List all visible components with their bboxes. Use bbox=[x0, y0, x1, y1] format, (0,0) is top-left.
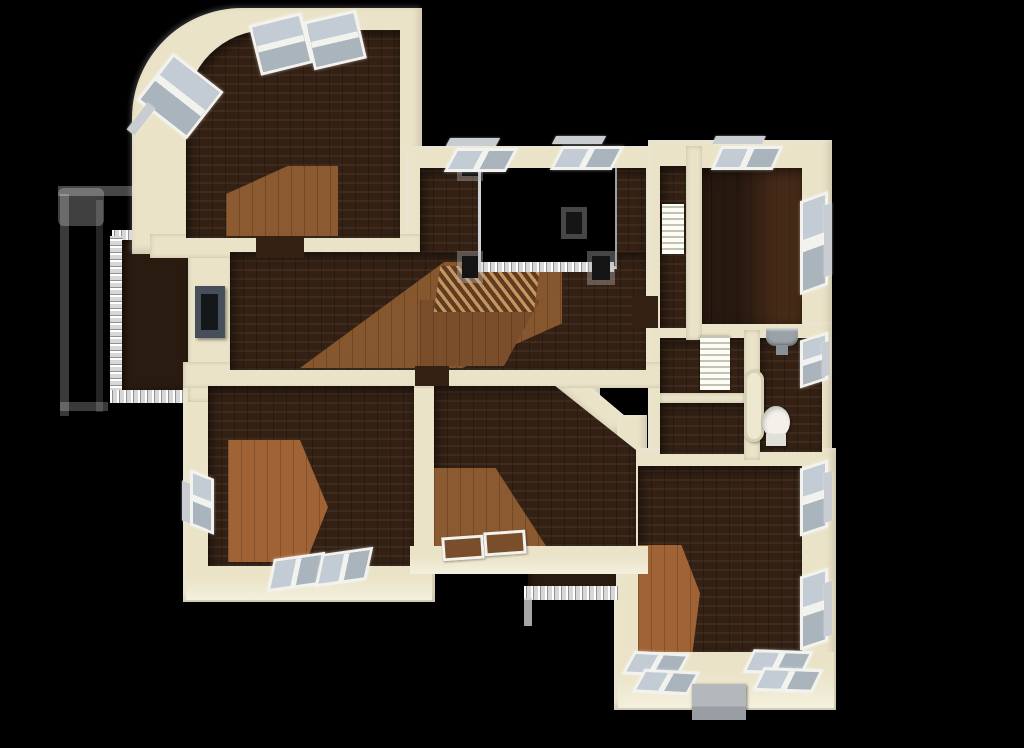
wall-closet-strip-right bbox=[686, 146, 702, 340]
wall-closet-separator bbox=[660, 393, 748, 403]
fireplace-firebox bbox=[201, 294, 218, 330]
sink-pedestal bbox=[776, 345, 788, 355]
window-top-right-top bbox=[711, 146, 784, 170]
window-bottom-right-b4 bbox=[752, 667, 823, 693]
ghost-railing-left bbox=[60, 194, 69, 416]
balcony-floor bbox=[122, 240, 190, 390]
window-stair-hall-1 bbox=[444, 148, 519, 172]
sill-bathroom bbox=[822, 341, 830, 378]
balcony-bottom-rail bbox=[524, 586, 618, 600]
toilet-tank bbox=[766, 434, 786, 446]
window-bottom-left-side bbox=[190, 469, 214, 535]
chimney-block bbox=[692, 684, 746, 720]
window-stair-hall-2 bbox=[550, 146, 625, 170]
door-top-left-room bbox=[256, 236, 304, 258]
stairwell-opening bbox=[478, 168, 617, 269]
newel-post-middle bbox=[566, 212, 582, 234]
floorplan-canvas bbox=[0, 0, 1024, 748]
balcony-bottom-post bbox=[524, 598, 532, 626]
floor-window-2 bbox=[483, 530, 527, 557]
door-bottom-center-room bbox=[415, 366, 449, 386]
bathtub bbox=[744, 370, 764, 442]
sill-bottom-right-r1 bbox=[824, 471, 832, 524]
floor-room-top-right bbox=[698, 168, 802, 324]
newel-post-bottom-left bbox=[462, 256, 478, 278]
sill-top-right-side bbox=[824, 203, 832, 278]
sill-top-right-top bbox=[712, 136, 766, 144]
sill-stair-hall-1 bbox=[446, 138, 500, 146]
sill-bottom-left-side bbox=[182, 480, 190, 523]
sill-bottom-right-r2 bbox=[824, 581, 832, 638]
ghost-railing-inner bbox=[96, 200, 103, 412]
door-hall-to-closets bbox=[632, 296, 658, 328]
stair-treads bbox=[434, 266, 540, 312]
sill-stair-hall-2 bbox=[552, 136, 606, 144]
shelves-closet-strip bbox=[662, 204, 684, 254]
shelves-closet-1 bbox=[700, 336, 730, 390]
sink-basin bbox=[766, 328, 798, 346]
page: { "view": { "type": "3d-overhead-floorpl… bbox=[0, 0, 1024, 748]
floor-closet-2 bbox=[660, 402, 748, 454]
floor-window-1 bbox=[441, 535, 485, 562]
newel-post-bottom-right bbox=[592, 256, 610, 280]
